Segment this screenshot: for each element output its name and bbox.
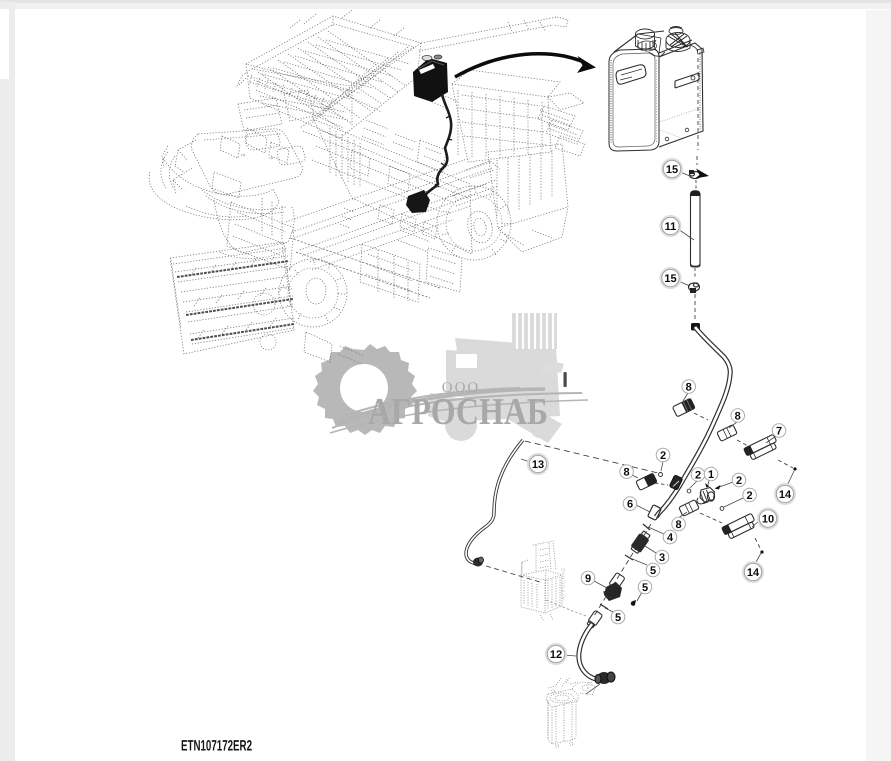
svg-text:2: 2: [660, 450, 666, 462]
svg-text:11: 11: [665, 221, 677, 233]
svg-text:3: 3: [659, 552, 665, 564]
svg-text:9: 9: [585, 573, 591, 585]
svg-text:13: 13: [532, 459, 544, 471]
svg-text:2: 2: [695, 470, 701, 482]
svg-text:8: 8: [624, 467, 630, 479]
svg-text:АГРОСНАБ: АГРОСНАБ: [368, 391, 548, 433]
svg-text:6: 6: [627, 499, 633, 511]
svg-text:8: 8: [735, 411, 741, 423]
svg-text:8: 8: [676, 519, 682, 531]
svg-text:2: 2: [736, 475, 742, 487]
svg-text:2: 2: [747, 490, 753, 502]
svg-text:5: 5: [615, 612, 621, 624]
svg-text:14: 14: [747, 567, 760, 579]
svg-text:14: 14: [779, 489, 792, 501]
svg-text:4: 4: [667, 532, 674, 544]
svg-text:12: 12: [550, 649, 562, 661]
svg-text:15: 15: [664, 273, 676, 285]
svg-text:15: 15: [666, 164, 678, 176]
svg-text:10: 10: [762, 514, 774, 526]
svg-text:1: 1: [708, 469, 714, 481]
svg-text:5: 5: [650, 565, 656, 577]
svg-text:7: 7: [776, 426, 782, 438]
svg-text:8: 8: [686, 382, 692, 394]
svg-text:ETN107172ER2: ETN107172ER2: [181, 738, 252, 755]
svg-text:5: 5: [642, 582, 648, 594]
